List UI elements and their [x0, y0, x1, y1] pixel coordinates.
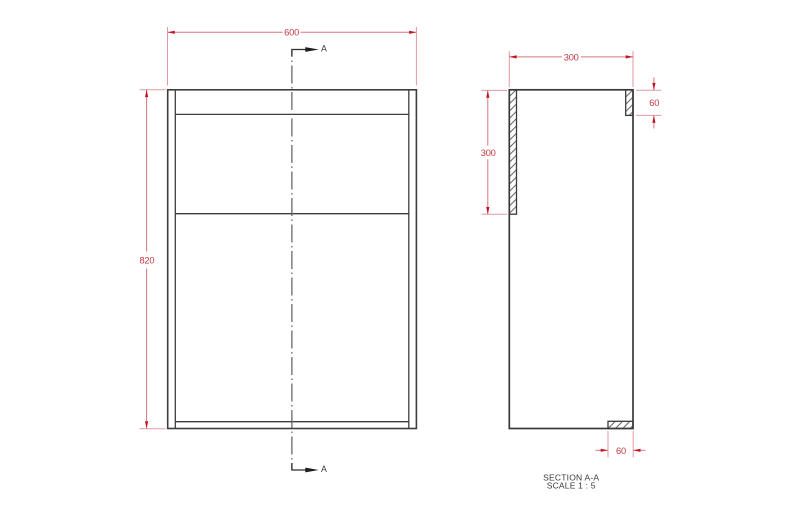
- svg-text:SCALE 1 : 5: SCALE 1 : 5: [547, 481, 596, 491]
- svg-text:820: 820: [139, 255, 154, 265]
- svg-text:60: 60: [616, 446, 626, 456]
- svg-text:60: 60: [649, 98, 659, 108]
- svg-text:300: 300: [564, 53, 579, 63]
- svg-text:A: A: [321, 464, 327, 474]
- svg-text:A: A: [321, 44, 327, 54]
- svg-text:600: 600: [284, 28, 299, 38]
- svg-text:300: 300: [481, 148, 496, 158]
